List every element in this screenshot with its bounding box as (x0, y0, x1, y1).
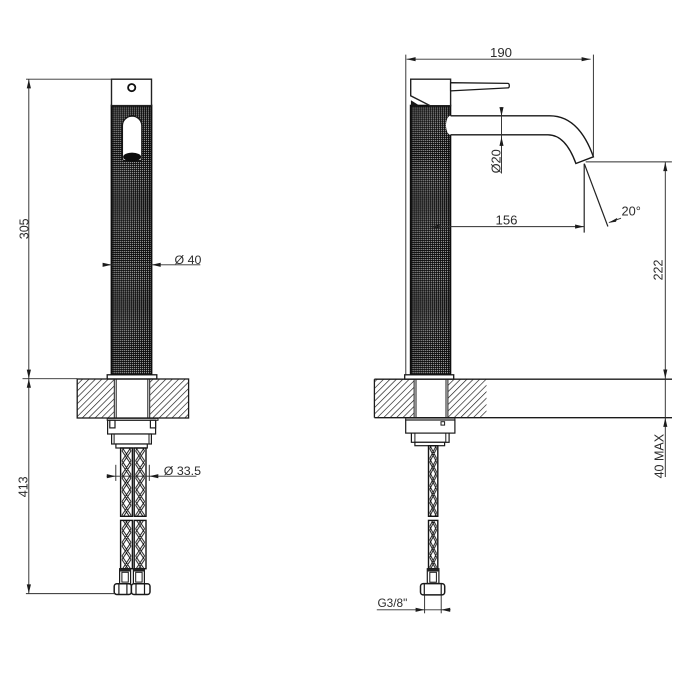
svg-text:G3/8": G3/8" (378, 596, 408, 610)
svg-text:Ø20: Ø20 (488, 149, 503, 173)
svg-text:20°: 20° (622, 203, 641, 218)
svg-text:222: 222 (652, 260, 666, 281)
svg-text:156: 156 (495, 213, 517, 228)
svg-text:Ø 40: Ø 40 (175, 253, 202, 267)
svg-text:305: 305 (17, 218, 31, 239)
svg-text:Ø 33.5: Ø 33.5 (164, 464, 201, 478)
svg-text:40 MAX: 40 MAX (652, 433, 666, 478)
svg-text:190: 190 (490, 45, 512, 60)
svg-text:413: 413 (16, 476, 30, 497)
